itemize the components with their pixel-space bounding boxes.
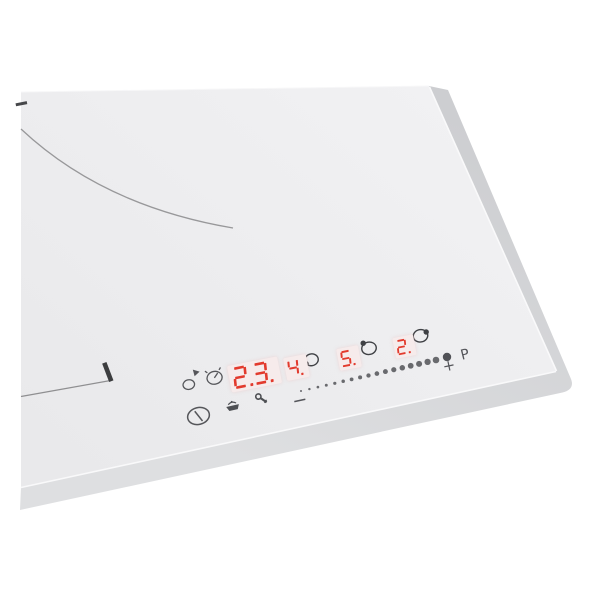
product-photo: − + P: [0, 0, 600, 600]
hob-glass-surface: [21, 86, 556, 487]
zone-display-front: [283, 354, 310, 381]
zone-display-back-right: [392, 334, 417, 359]
zone-display-back-left: [336, 345, 362, 371]
